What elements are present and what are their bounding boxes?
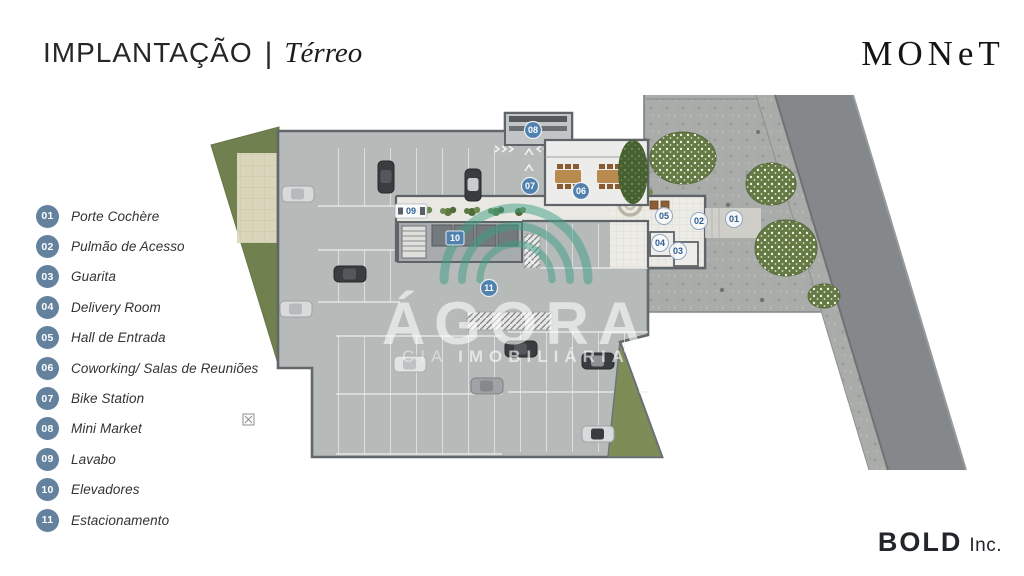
page-title: IMPLANTAÇÃO | Térreo xyxy=(43,36,362,72)
svg-text:06: 06 xyxy=(576,186,586,196)
svg-text:07: 07 xyxy=(525,181,535,191)
legend-label: Guarita xyxy=(71,269,116,284)
legend-badge: 11 xyxy=(36,509,59,532)
legend-label: Porte Cochère xyxy=(71,209,159,224)
legend-label: Bike Station xyxy=(71,391,144,406)
legend-label: Estacionamento xyxy=(71,513,169,528)
legend-item-05: 05Hall de Entrada xyxy=(36,323,266,353)
svg-text:01: 01 xyxy=(729,214,739,224)
plan-marker-04: 04 xyxy=(652,235,669,252)
legend: 01Porte Cochère02Pulmão de Acesso03Guari… xyxy=(36,201,266,535)
svg-text:11: 11 xyxy=(484,283,494,293)
hedge xyxy=(618,140,648,204)
legend-label: Hall de Entrada xyxy=(71,330,166,345)
svg-text:04: 04 xyxy=(655,238,665,248)
svg-text:05: 05 xyxy=(659,211,669,221)
legend-badge: 06 xyxy=(36,357,59,380)
svg-text:CIA IMOBILIÁRIA: CIA IMOBILIÁRIA xyxy=(402,347,630,366)
svg-text:02: 02 xyxy=(694,216,704,226)
plan-marker-05: 05 xyxy=(656,208,673,225)
legend-label: Pulmão de Acesso xyxy=(71,239,185,254)
plan-marker-07: 07 xyxy=(522,178,539,195)
monet-logo: MONeT xyxy=(858,34,1008,74)
plan-marker-03: 03 xyxy=(670,243,687,260)
svg-text:08: 08 xyxy=(528,125,538,135)
svg-text:09: 09 xyxy=(406,206,416,216)
plan-marker-06: 06 xyxy=(573,183,590,200)
legend-badge: 03 xyxy=(36,265,59,288)
plan-marker-11: 11 xyxy=(481,280,498,297)
plan-marker-01: 01 xyxy=(726,211,743,228)
legend-item-03: 03Guarita xyxy=(36,262,266,292)
legend-item-02: 02Pulmão de Acesso xyxy=(36,231,266,261)
publisher-suffix: Inc. xyxy=(969,535,1002,557)
plan-marker-09: 09 xyxy=(395,204,427,218)
legend-item-04: 04Delivery Room xyxy=(36,292,266,322)
bold-inc-logo: BOLD Inc. xyxy=(878,527,1002,558)
legend-item-09: 09Lavabo xyxy=(36,444,266,474)
page: { "header": { "title": "IMPLANTAÇÃO", "s… xyxy=(0,0,1024,576)
legend-item-10: 10Elevadores xyxy=(36,475,266,505)
plan-marker-02: 02 xyxy=(691,213,708,230)
legend-item-08: 08Mini Market xyxy=(36,414,266,444)
legend-item-01: 01Porte Cochère xyxy=(36,201,266,231)
legend-item-07: 07Bike Station xyxy=(36,383,266,413)
title-separator: | xyxy=(265,37,273,71)
publisher-name: BOLD xyxy=(878,527,963,558)
legend-badge: 05 xyxy=(36,326,59,349)
title-subtitle: Térreo xyxy=(284,37,362,70)
legend-badge: 07 xyxy=(36,387,59,410)
svg-text:10: 10 xyxy=(450,233,460,243)
title-main: IMPLANTAÇÃO xyxy=(43,37,253,69)
legend-item-11: 11Estacionamento xyxy=(36,505,266,535)
legend-badge: 01 xyxy=(36,205,59,228)
legend-label: Lavabo xyxy=(71,452,116,467)
plan-marker-10: 10 xyxy=(446,231,464,245)
legend-item-06: 06Coworking/ Salas de Reuniões xyxy=(36,353,266,383)
legend-label: Coworking/ Salas de Reuniões xyxy=(71,361,258,376)
legend-label: Mini Market xyxy=(71,421,142,436)
plan-marker-08: 08 xyxy=(525,122,542,139)
svg-text:03: 03 xyxy=(673,246,683,256)
legend-label: Delivery Room xyxy=(71,300,161,315)
legend-badge: 09 xyxy=(36,448,59,471)
legend-badge: 04 xyxy=(36,296,59,319)
legend-badge: 10 xyxy=(36,478,59,501)
legend-badge: 08 xyxy=(36,417,59,440)
legend-label: Elevadores xyxy=(71,482,140,497)
legend-badge: 02 xyxy=(36,235,59,258)
